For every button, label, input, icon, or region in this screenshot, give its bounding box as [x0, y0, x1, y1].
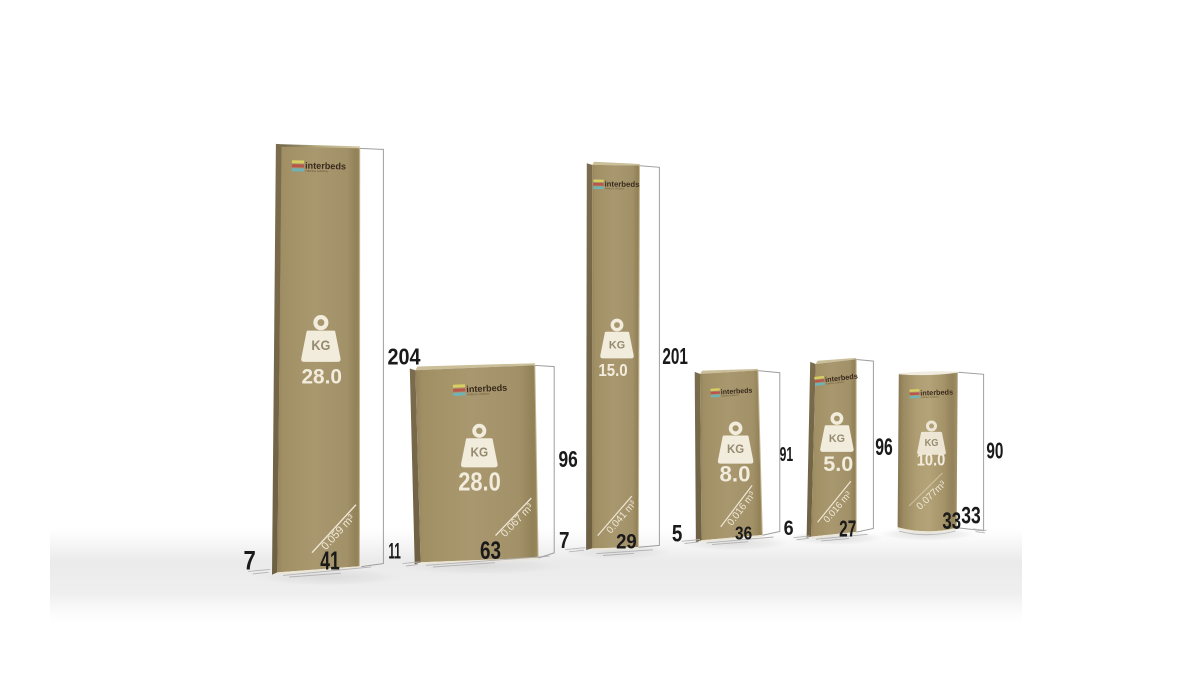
svg-text:11: 11 — [388, 538, 401, 563]
svg-text:29: 29 — [616, 530, 637, 554]
svg-text:6: 6 — [784, 516, 794, 540]
svg-text:91: 91 — [780, 443, 794, 466]
svg-text:33: 33 — [942, 508, 961, 535]
svg-text:63: 63 — [480, 537, 501, 565]
svg-text:33: 33 — [961, 502, 981, 529]
svg-text:7: 7 — [243, 545, 255, 575]
svg-text:5: 5 — [672, 521, 683, 548]
svg-text:7: 7 — [559, 527, 570, 553]
svg-text:204: 204 — [388, 343, 421, 369]
svg-text:27: 27 — [839, 515, 856, 541]
svg-text:28.0: 28.0 — [301, 365, 342, 389]
svg-text:28.0: 28.0 — [458, 466, 501, 496]
svg-text:90: 90 — [986, 437, 1003, 463]
svg-text:96: 96 — [875, 434, 893, 461]
svg-text:201: 201 — [662, 343, 688, 369]
svg-text:5.0: 5.0 — [823, 453, 853, 476]
svg-text:36: 36 — [735, 523, 752, 543]
svg-text:15.0: 15.0 — [598, 360, 628, 380]
svg-text:10.0: 10.0 — [917, 450, 946, 470]
svg-text:8.0: 8.0 — [720, 461, 751, 486]
svg-text:96: 96 — [559, 446, 578, 472]
svg-text:41: 41 — [320, 545, 340, 575]
